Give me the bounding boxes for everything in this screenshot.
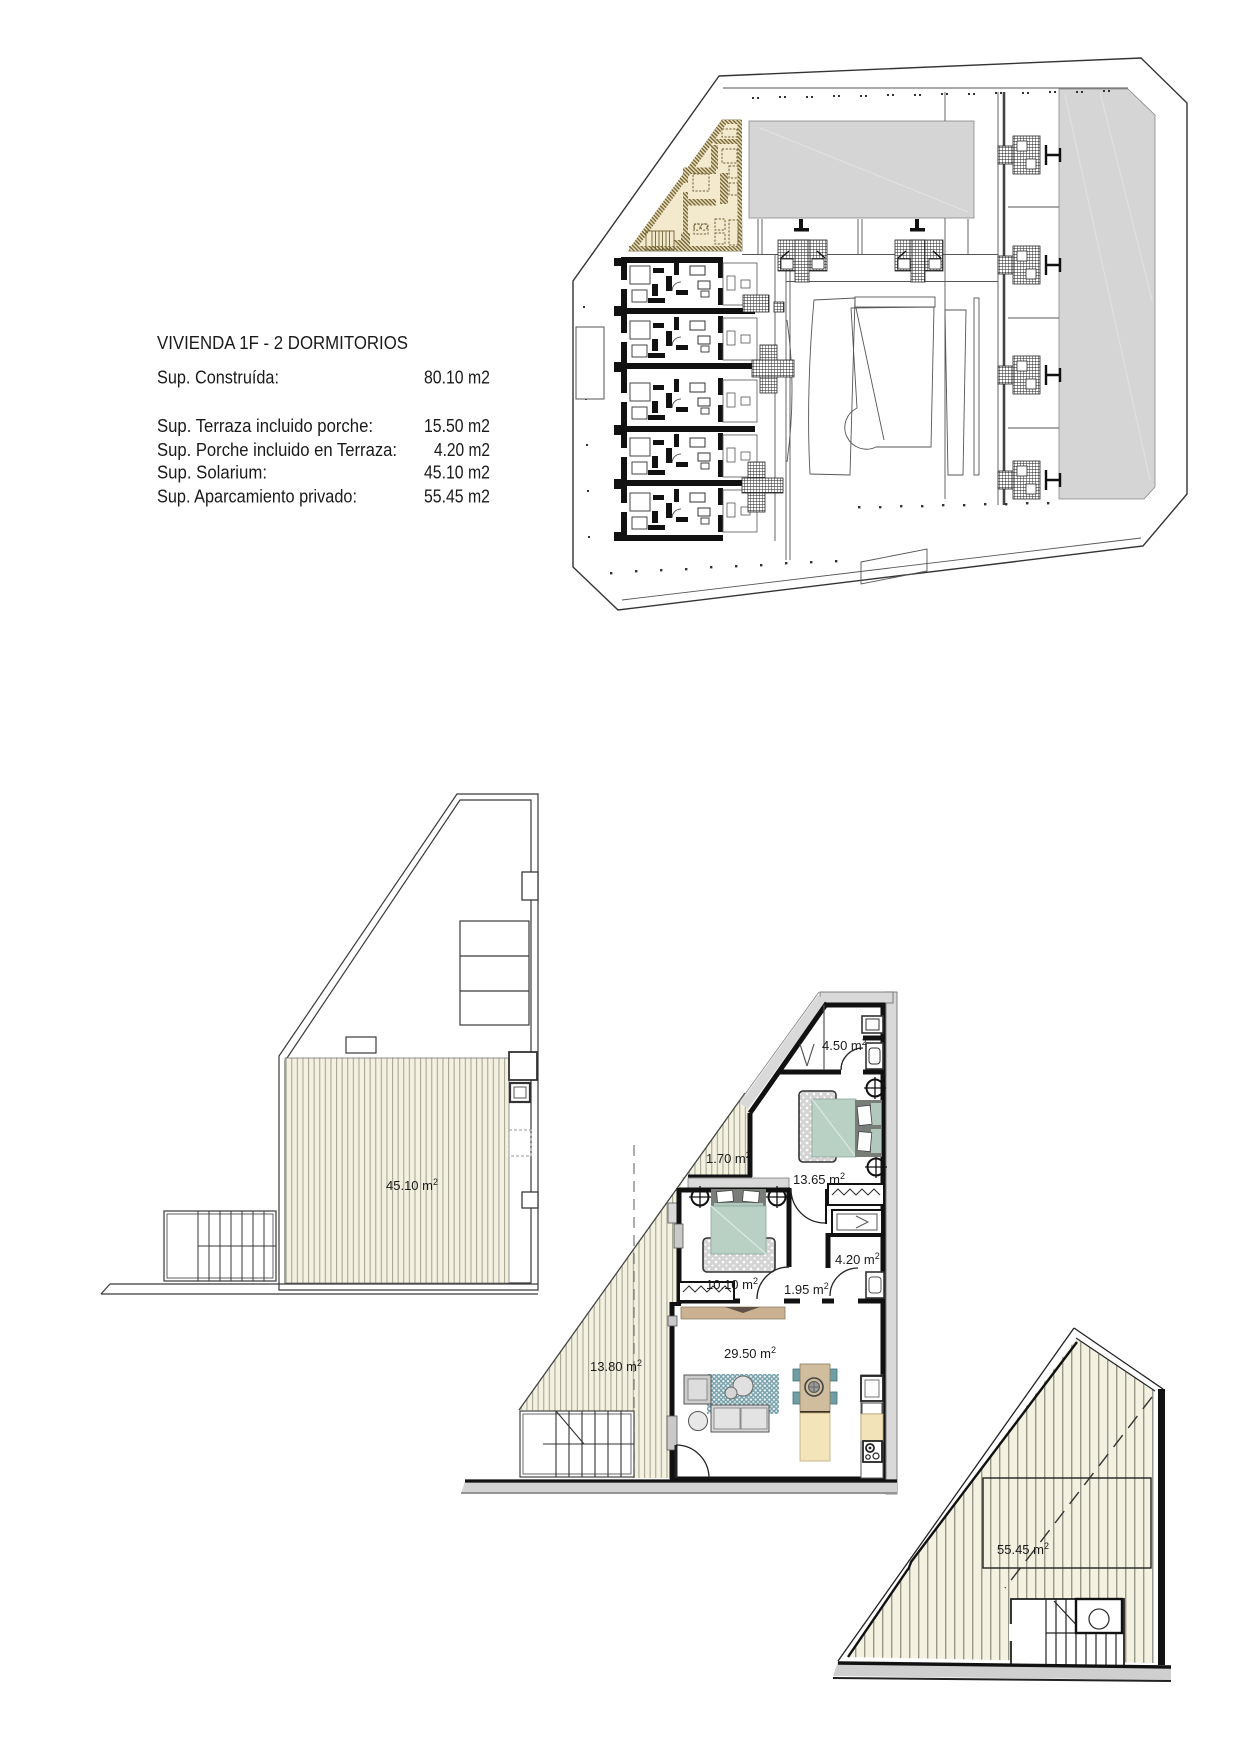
svg-text:1.95 m2: 1.95 m2 [784, 1281, 829, 1297]
svg-text:Sup. Solarium:: Sup. Solarium: [157, 463, 267, 483]
svg-text:4.20 m2: 4.20 m2 [434, 440, 490, 460]
svg-text:Sup. Terraza incluido porche:: Sup. Terraza incluido porche: [157, 416, 373, 436]
svg-text:4.50 m2: 4.50 m2 [822, 1037, 867, 1053]
svg-text:Sup. Aparcamiento privado:: Sup. Aparcamiento privado: [157, 487, 357, 507]
svg-text:13.80 m2: 13.80 m2 [590, 1358, 642, 1374]
svg-text:15.50 m2: 15.50 m2 [424, 416, 490, 436]
svg-text:Sup. Porche incluido en Terraz: Sup. Porche incluido en Terraza: [157, 440, 397, 460]
svg-text:45.10 m2: 45.10 m2 [386, 1177, 438, 1193]
svg-text:55.45 m2: 55.45 m2 [997, 1541, 1049, 1557]
svg-text:45.10 m2: 45.10 m2 [424, 463, 490, 483]
svg-text:4.20 m2: 4.20 m2 [835, 1251, 880, 1267]
svg-text:VIVIENDA 1F - 2 DORMITORIOS: VIVIENDA 1F - 2 DORMITORIOS [157, 333, 408, 353]
svg-text:Sup. Construída:: Sup. Construída: [157, 368, 279, 388]
svg-text:29.50 m2: 29.50 m2 [724, 1345, 776, 1361]
svg-text:13.65 m2: 13.65 m2 [793, 1171, 845, 1187]
svg-text:10.10 m2: 10.10 m2 [706, 1276, 758, 1292]
svg-text:55.45 m2: 55.45 m2 [424, 487, 490, 507]
svg-text:80.10 m2: 80.10 m2 [424, 368, 490, 388]
svg-text:1.70 m2: 1.70 m2 [706, 1150, 751, 1166]
